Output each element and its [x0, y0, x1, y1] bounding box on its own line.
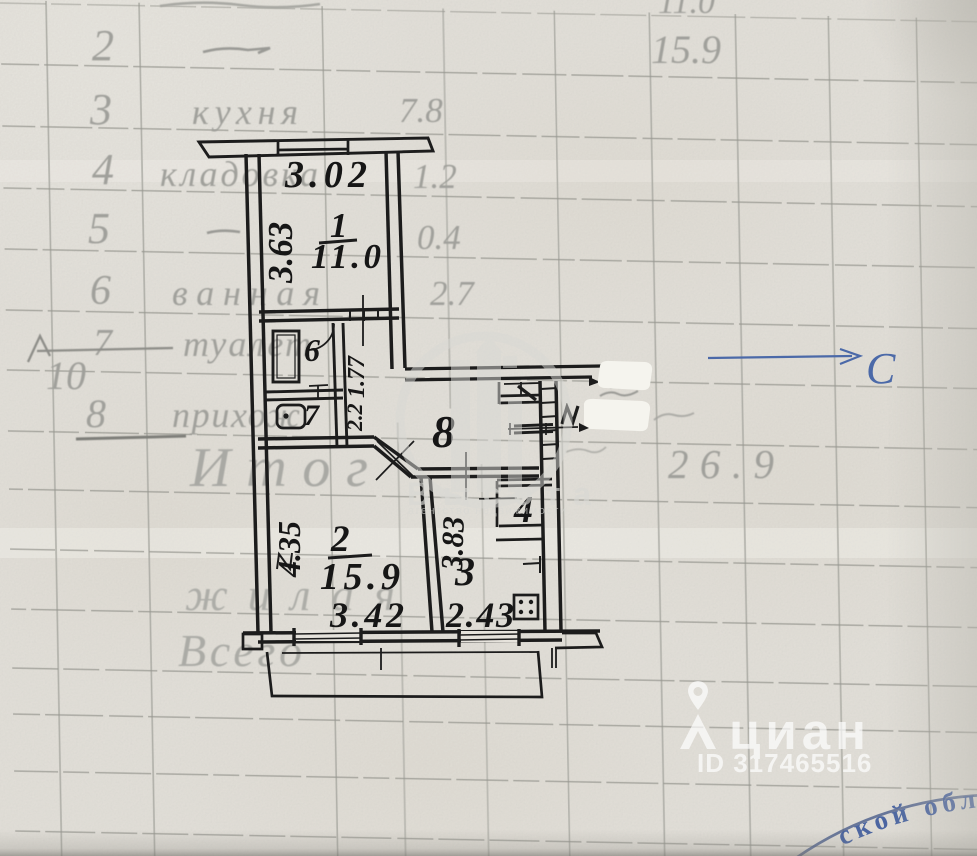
svg-text:кухня: кухня — [192, 92, 298, 132]
svg-text:3.02: 3.02 — [284, 154, 367, 196]
svg-text:агентство недвижимости: агентство недвижимости — [408, 505, 566, 517]
svg-text:2.43: 2.43 — [445, 595, 514, 635]
svg-text:11.0: 11.0 — [311, 237, 381, 276]
svg-text:6: 6 — [90, 268, 111, 314]
svg-text:4.35: 4.35 — [271, 521, 307, 578]
svg-text:6: 6 — [304, 332, 320, 368]
svg-text:7: 7 — [304, 399, 320, 432]
svg-text:3.63: 3.63 — [261, 222, 300, 284]
svg-text:1.2: 1.2 — [413, 157, 457, 196]
svg-text:8: 8 — [86, 391, 106, 436]
svg-text:7: 7 — [93, 322, 114, 364]
svg-text:4: 4 — [92, 145, 114, 194]
svg-text:3.83: 3.83 — [434, 516, 471, 572]
svg-text:3.42: 3.42 — [329, 595, 404, 635]
svg-text:0.4: 0.4 — [417, 218, 461, 257]
svg-text:ID 317465516: ID 317465516 — [697, 748, 872, 778]
svg-text:2.2: 2.2 — [342, 404, 367, 433]
svg-text:15.9: 15.9 — [320, 556, 400, 598]
svg-text:2.7: 2.7 — [430, 274, 475, 313]
svg-text:1.77: 1.77 — [344, 355, 370, 398]
svg-text:2: 2 — [330, 519, 350, 560]
svg-text:3: 3 — [89, 85, 112, 134]
svg-text:2: 2 — [92, 21, 114, 70]
svg-text:10: 10 — [46, 353, 86, 398]
svg-text:5: 5 — [88, 204, 110, 253]
svg-text:7.8: 7.8 — [399, 91, 443, 130]
